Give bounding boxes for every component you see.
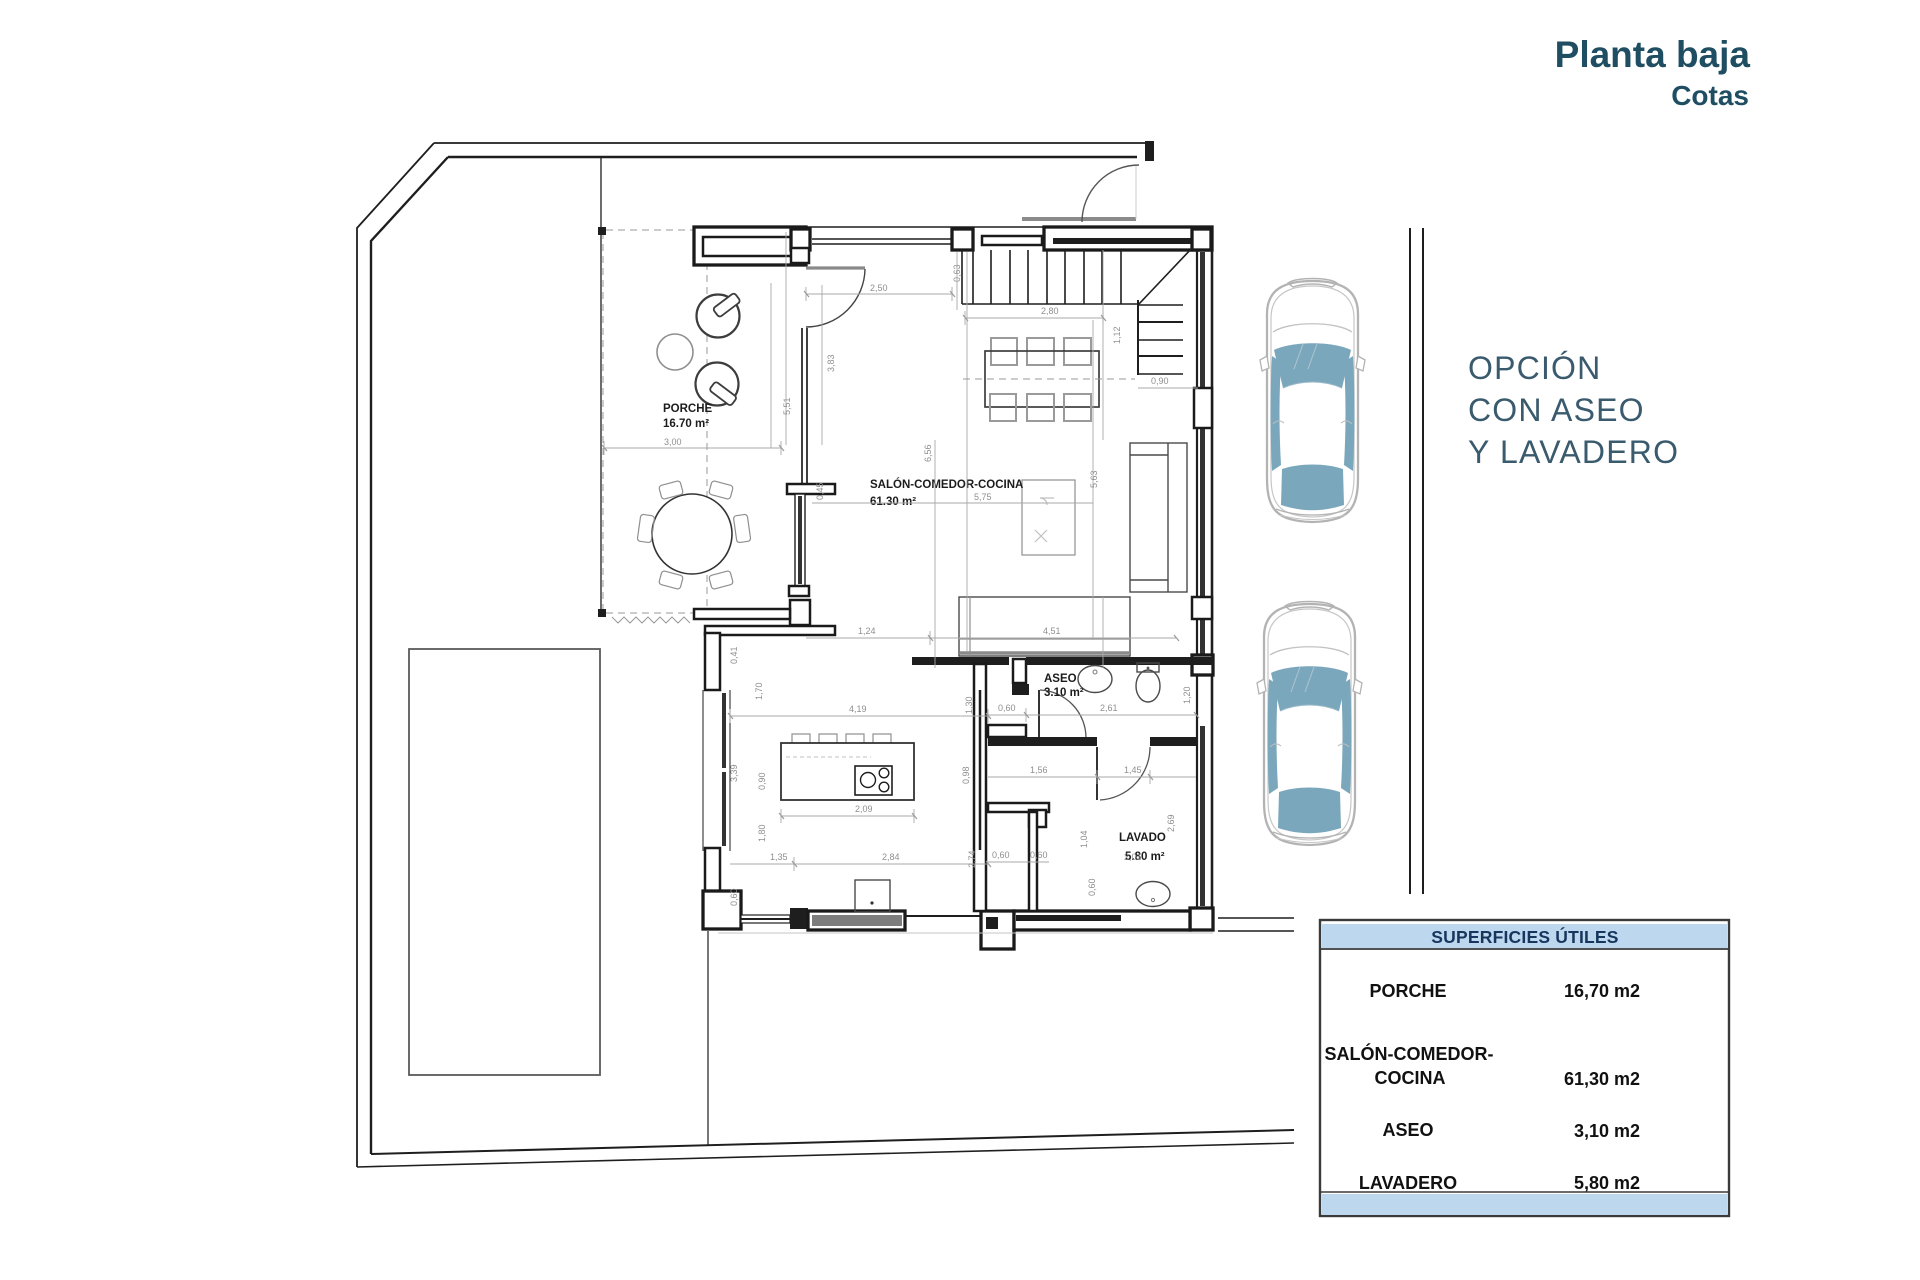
svg-text:5,80 m2: 5,80 m2 [1574,1173,1640,1193]
svg-text:1,35: 1,35 [770,852,788,862]
svg-text:LAVADO: LAVADO [1119,832,1166,844]
svg-text:2,01: 2,01 [1124,852,1142,862]
svg-text:3,00: 3,00 [664,437,682,447]
svg-text:16.70 m²: 16.70 m² [663,418,709,430]
svg-text:Y LAVADERO: Y LAVADERO [1468,434,1679,470]
svg-text:4,51: 4,51 [1043,626,1061,636]
svg-text:0,60: 0,60 [729,888,739,906]
svg-text:0,90: 0,90 [757,772,767,790]
svg-text:0,41: 0,41 [729,646,739,664]
svg-text:1,70: 1,70 [754,682,764,700]
svg-text:16,70 m2: 16,70 m2 [1564,981,1640,1001]
svg-text:1,45: 1,45 [1124,765,1142,775]
svg-text:2,50: 2,50 [870,283,888,293]
svg-text:PORCHE: PORCHE [1369,981,1446,1001]
svg-text:1,56: 1,56 [1030,765,1048,775]
svg-text:Cotas: Cotas [1671,80,1749,111]
svg-text:2,74: 2,74 [967,850,977,868]
svg-text:6,56: 6,56 [923,444,933,462]
svg-text:SALÓN-COMEDOR-: SALÓN-COMEDOR- [1325,1043,1494,1064]
svg-text:0,98: 0,98 [961,766,971,784]
svg-text:SUPERFICIES ÚTILES: SUPERFICIES ÚTILES [1431,926,1618,947]
svg-text:3,10 m2: 3,10 m2 [1574,1121,1640,1141]
svg-text:PORCHE: PORCHE [663,403,713,415]
svg-text:SALÓN-COMEDOR-COCINA: SALÓN-COMEDOR-COCINA [870,478,1023,491]
svg-text:CON ASEO: CON ASEO [1468,392,1645,428]
svg-text:0,60: 0,60 [1030,850,1048,860]
svg-text:ASEO: ASEO [1044,673,1077,685]
svg-text:1,30: 1,30 [964,696,974,714]
svg-text:ASEO: ASEO [1382,1120,1433,1140]
svg-text:0,90: 0,90 [1151,376,1169,386]
svg-text:61.30 m²: 61.30 m² [870,496,916,508]
svg-text:0,60: 0,60 [1087,878,1097,896]
svg-text:2,61: 2,61 [1100,703,1118,713]
svg-text:LAVADERO: LAVADERO [1359,1173,1457,1193]
svg-text:1,04: 1,04 [1079,830,1089,848]
svg-text:3,39: 3,39 [729,764,739,782]
svg-text:0,60: 0,60 [998,703,1016,713]
svg-text:5,63: 5,63 [1089,470,1099,488]
svg-text:2,69: 2,69 [1166,814,1176,832]
svg-text:2,80: 2,80 [1041,306,1059,316]
svg-text:5,75: 5,75 [974,492,992,502]
svg-text:1,24: 1,24 [858,626,876,636]
svg-text:1,20: 1,20 [1182,686,1192,704]
svg-text:0,60: 0,60 [992,850,1010,860]
svg-text:3,83: 3,83 [826,354,836,372]
svg-text:Planta baja: Planta baja [1555,34,1751,75]
svg-text:1,80: 1,80 [757,824,767,842]
svg-text:3.10 m²: 3.10 m² [1044,687,1084,699]
svg-text:COCINA: COCINA [1375,1068,1446,1088]
svg-text:2,09: 2,09 [855,804,873,814]
svg-text:0,45: 0,45 [815,482,825,500]
svg-text:OPCIÓN: OPCIÓN [1468,350,1601,386]
svg-text:1,12: 1,12 [1112,326,1122,344]
svg-text:61,30 m2: 61,30 m2 [1564,1069,1640,1089]
svg-text:4,19: 4,19 [849,704,867,714]
svg-text:5,51: 5,51 [782,397,792,415]
svg-text:2,84: 2,84 [882,852,900,862]
